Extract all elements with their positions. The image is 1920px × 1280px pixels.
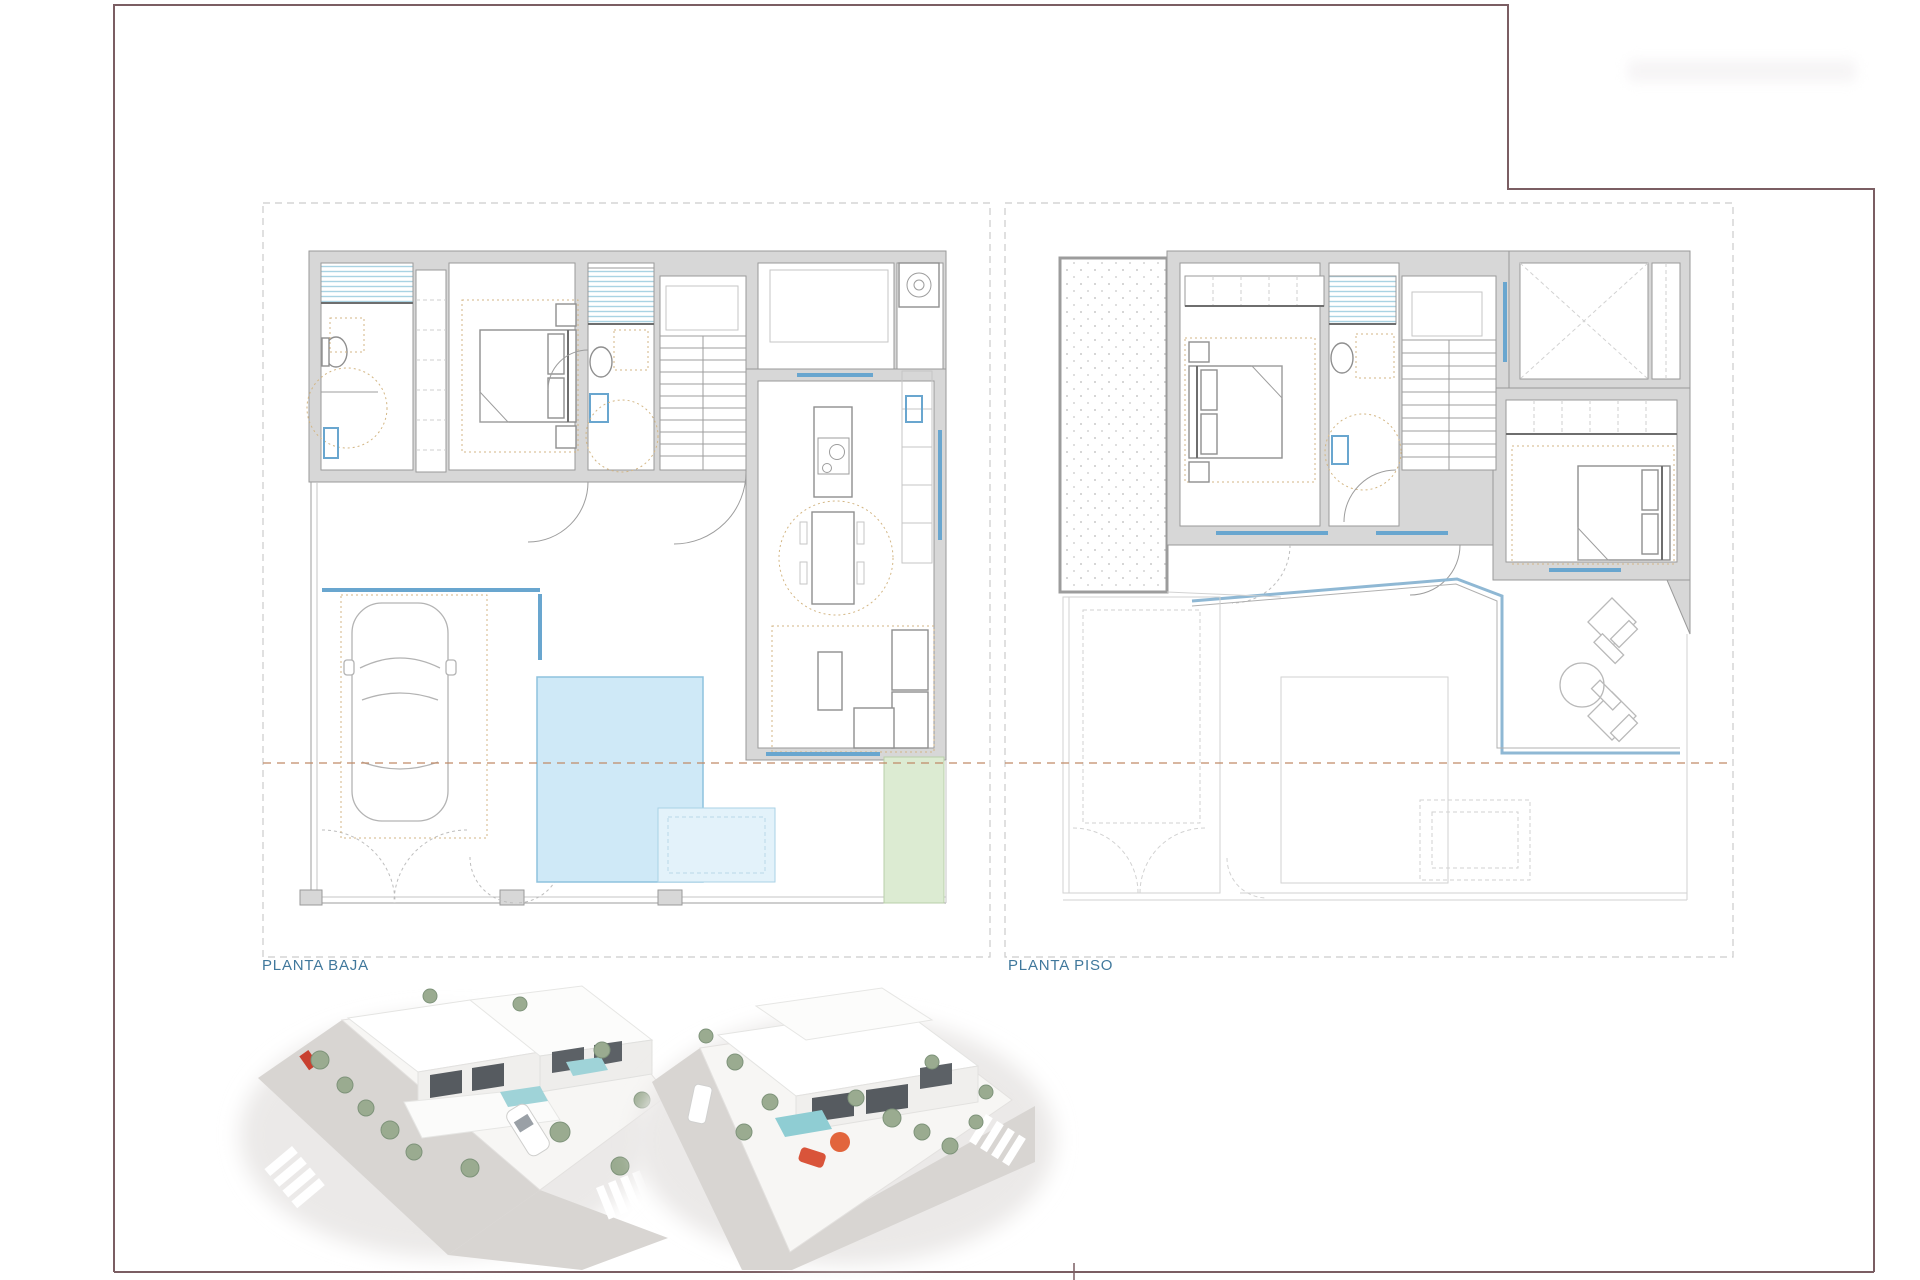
plan-sheet: PLANTA BAJA PLANTA PISO bbox=[0, 0, 1920, 1280]
dining-table bbox=[812, 512, 854, 604]
toilet-2 bbox=[590, 347, 612, 377]
storage-room bbox=[758, 263, 894, 369]
plan-label-planta-piso: PLANTA PISO bbox=[1008, 957, 1113, 974]
toilet-3 bbox=[1331, 343, 1353, 373]
terrace-chairs bbox=[1560, 598, 1640, 744]
garage-door-swing bbox=[322, 830, 395, 903]
sofa bbox=[892, 630, 928, 690]
washing-machine bbox=[899, 263, 939, 307]
floor-plan-planta-baja bbox=[300, 251, 946, 905]
shower-2 bbox=[588, 268, 654, 324]
shower-1 bbox=[321, 263, 413, 303]
render-exterior-2 bbox=[635, 988, 1055, 1270]
lawn bbox=[884, 757, 944, 903]
coffee-table bbox=[818, 652, 842, 710]
solarium-terrace bbox=[1060, 258, 1167, 592]
faint-watermark bbox=[1628, 60, 1856, 82]
parasol-orange bbox=[830, 1132, 850, 1152]
kitchen-island bbox=[814, 407, 852, 497]
shower-3 bbox=[1329, 276, 1396, 324]
pool-step bbox=[658, 808, 775, 882]
ghost-ground-floor bbox=[1063, 592, 1687, 900]
plan-label-planta-baja: PLANTA BAJA bbox=[262, 957, 369, 974]
floor-plan-planta-piso bbox=[1060, 251, 1690, 900]
car bbox=[344, 603, 456, 821]
plan-sheet-svg bbox=[0, 0, 1920, 1280]
render-exterior-1 bbox=[240, 986, 668, 1270]
